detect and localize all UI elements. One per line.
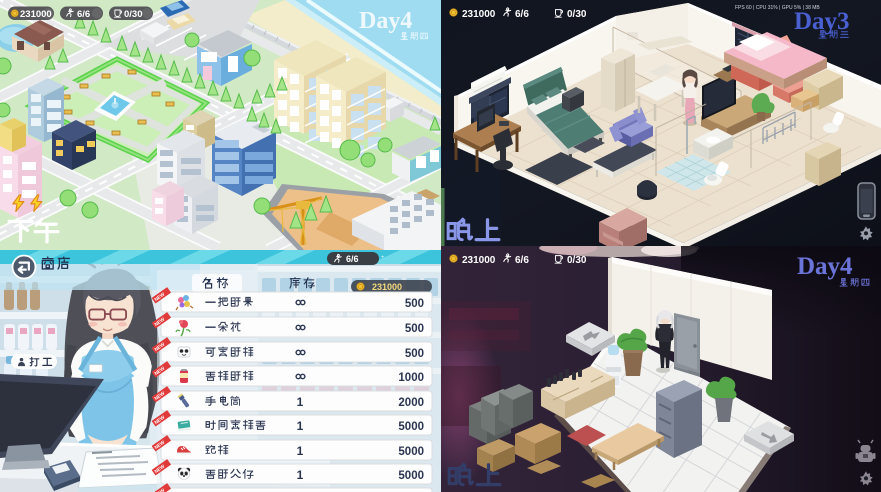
svg-text:500: 500 <box>405 323 424 335</box>
svg-text:500: 500 <box>405 348 424 360</box>
svg-text:1000: 1000 <box>398 372 424 384</box>
svg-text:500: 500 <box>405 298 424 310</box>
svg-text:6/6: 6/6 <box>515 9 529 20</box>
svg-text:231000: 231000 <box>462 255 496 266</box>
svg-text:0/30: 0/30 <box>567 9 587 20</box>
svg-text:5000: 5000 <box>398 470 424 482</box>
svg-text:1: 1 <box>297 395 304 409</box>
svg-text:1: 1 <box>297 468 304 482</box>
svg-text:5000: 5000 <box>398 421 424 433</box>
svg-text:231000: 231000 <box>372 282 402 292</box>
svg-text:1: 1 <box>297 419 304 433</box>
svg-text:231000: 231000 <box>462 9 496 20</box>
svg-text:Day4: Day4 <box>359 8 412 34</box>
svg-text:1: 1 <box>297 444 304 458</box>
svg-text:6/6: 6/6 <box>77 9 90 20</box>
svg-text:0/30: 0/30 <box>124 9 143 20</box>
svg-text:0/30: 0/30 <box>567 255 587 266</box>
svg-text:Day4: Day4 <box>797 253 853 280</box>
svg-text:6/6: 6/6 <box>515 255 529 266</box>
svg-text:6/6: 6/6 <box>346 254 359 264</box>
svg-text:+: + <box>381 255 385 261</box>
svg-text:5000: 5000 <box>398 446 424 458</box>
svg-text:231000: 231000 <box>20 9 52 20</box>
svg-text:2000: 2000 <box>398 397 424 409</box>
